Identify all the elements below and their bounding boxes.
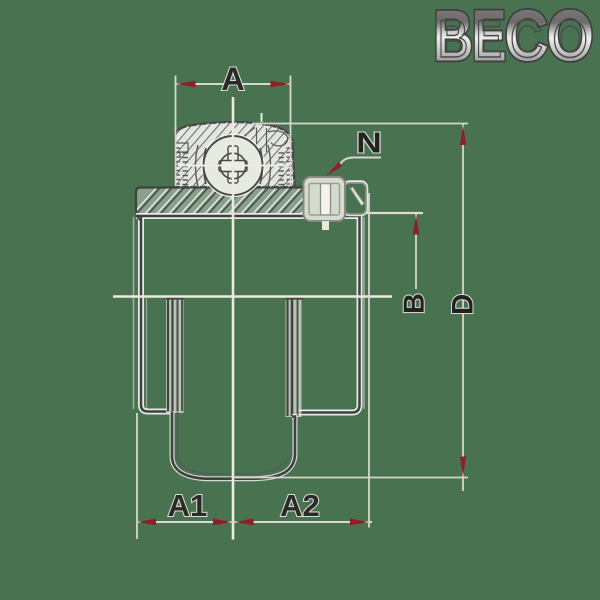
svg-text:A2: A2 — [280, 488, 320, 523]
svg-text:A1: A1 — [168, 488, 208, 523]
svg-text:B: B — [438, 10, 468, 69]
svg-text:A: A — [221, 61, 244, 97]
svg-text:N: N — [356, 127, 382, 159]
svg-text:E: E — [476, 9, 502, 68]
svg-text:B: B — [399, 293, 431, 314]
svg-text:O: O — [553, 10, 588, 69]
svg-text:C: C — [510, 10, 543, 69]
svg-text:D: D — [447, 294, 480, 315]
